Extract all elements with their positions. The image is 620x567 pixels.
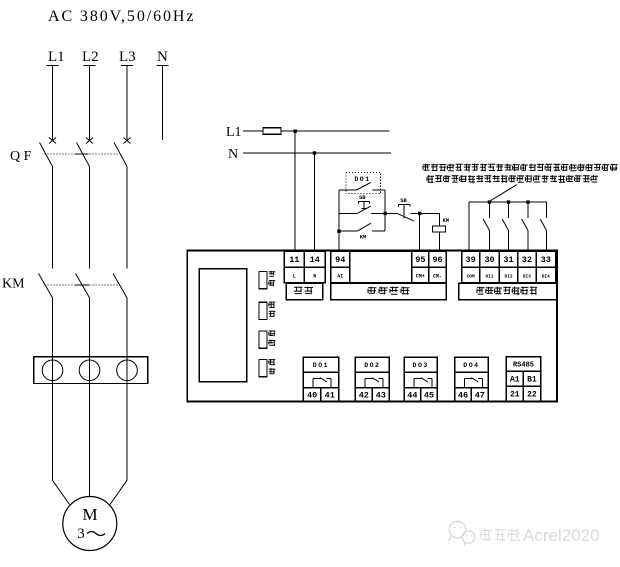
svg-text:22: 22 [527,391,537,400]
svg-text:N: N [313,274,316,280]
svg-text:RS485: RS485 [513,362,534,370]
svg-text:96: 96 [432,255,442,265]
svg-text:SB: SB [359,194,366,201]
svg-text:DO2: DO2 [364,362,380,369]
svg-text:3: 3 [77,526,85,542]
svg-text:33: 33 [541,255,551,265]
svg-text:14: 14 [310,255,320,265]
svg-text:KM: KM [2,277,25,292]
svg-text:L3: L3 [119,49,136,65]
svg-text:41: 41 [325,391,335,401]
svg-text:AC 380V,50/60Hz: AC 380V,50/60Hz [48,8,195,25]
svg-text:44: 44 [407,391,417,401]
svg-text:CM-: CM- [433,274,442,280]
svg-text:DI1: DI1 [485,274,493,280]
svg-text:11: 11 [289,255,299,265]
svg-text:Acrel2020: Acrel2020 [523,526,600,545]
svg-text:L2: L2 [82,49,99,65]
svg-text:DO1: DO1 [313,362,329,369]
svg-text:46: 46 [458,391,468,401]
svg-text:DI4: DI4 [542,274,550,280]
svg-text:30: 30 [484,255,494,265]
svg-text:KM: KM [442,217,449,224]
svg-text:Q F: Q F [10,149,32,164]
svg-text:L1: L1 [226,125,242,140]
svg-text:B1: B1 [527,376,537,385]
svg-text:40: 40 [307,391,317,401]
svg-text:42: 42 [359,391,369,401]
svg-text:DO1: DO1 [354,176,370,183]
svg-text:94: 94 [335,255,345,265]
svg-text:45: 45 [424,391,434,401]
svg-text:31: 31 [503,255,513,265]
svg-text:KM: KM [360,234,367,241]
svg-text:A1: A1 [510,376,520,385]
svg-text:COM: COM [467,274,475,280]
svg-text:CM+: CM+ [416,274,425,280]
svg-text:39: 39 [466,255,476,265]
svg-text:DI2: DI2 [504,274,512,280]
svg-text:32: 32 [522,255,532,265]
svg-text::: : [517,528,521,545]
svg-text:43: 43 [376,391,386,401]
svg-text:DI3: DI3 [523,274,531,280]
svg-text:N: N [228,147,238,162]
svg-text:DO4: DO4 [463,362,479,369]
svg-text:SB: SB [400,197,407,204]
svg-text:21: 21 [510,391,520,400]
svg-text:N: N [157,49,168,65]
svg-text:M: M [82,505,97,524]
svg-text:L: L [293,274,296,280]
svg-text:95: 95 [415,255,425,265]
svg-text:L1: L1 [48,49,65,65]
svg-text:47: 47 [475,391,485,401]
svg-text:AI: AI [337,274,343,280]
svg-text:DO3: DO3 [413,362,429,369]
